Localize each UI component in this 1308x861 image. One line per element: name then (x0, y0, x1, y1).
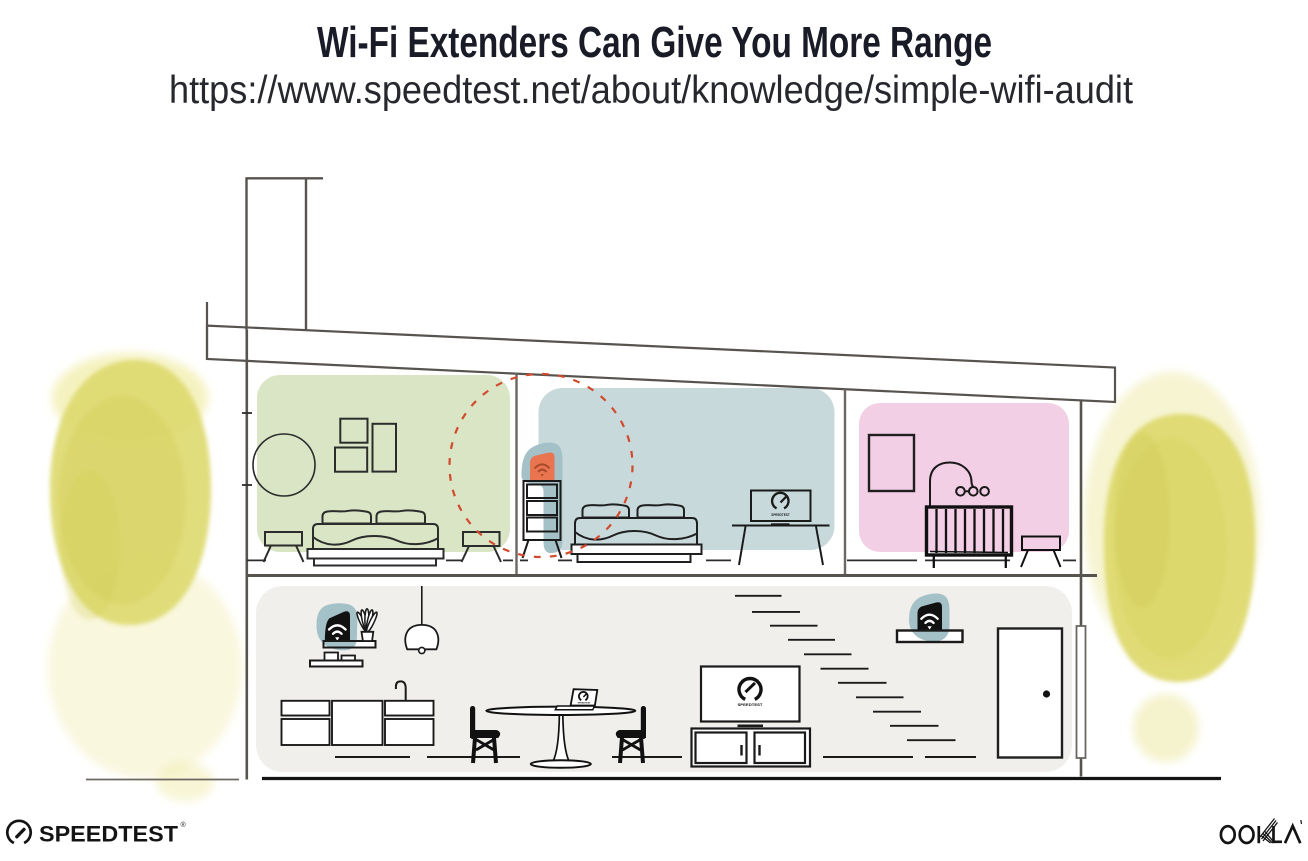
svg-text:SPEEDTEST: SPEEDTEST (39, 822, 178, 847)
svg-text:®: ® (181, 821, 187, 829)
svg-text:SPEEDTEST: SPEEDTEST (771, 513, 790, 517)
svg-text:SPEEDTEST: SPEEDTEST (738, 702, 764, 707)
svg-text:Wi-Fi Extenders Can Give You M: Wi-Fi Extenders Can Give You More Range (317, 18, 992, 67)
svg-text:https://www.speedtest.net/abou: https://www.speedtest.net/about/knowledg… (169, 69, 1133, 112)
svg-text:SPEEDTEST: SPEEDTEST (577, 703, 591, 705)
